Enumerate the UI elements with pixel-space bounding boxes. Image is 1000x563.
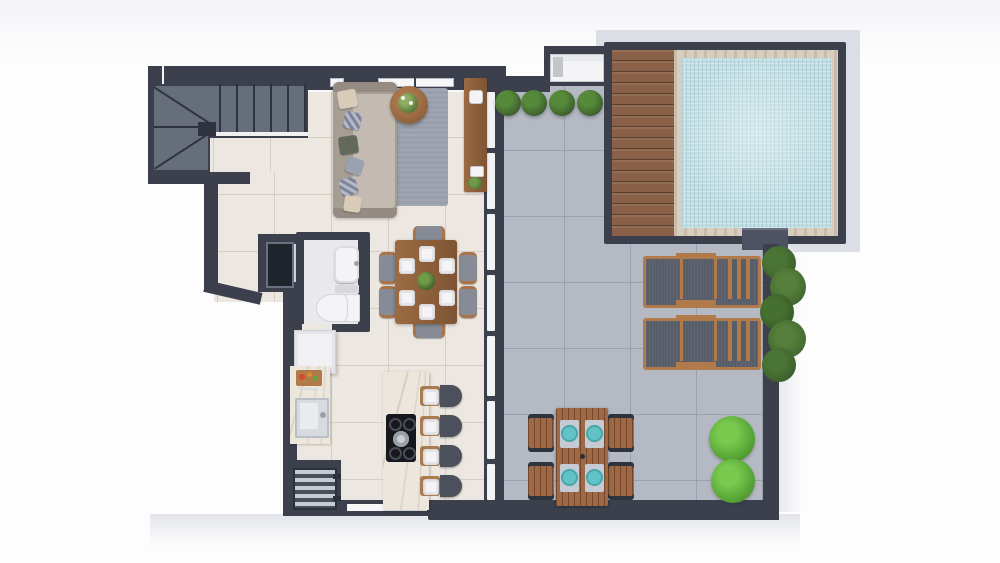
sun-lounger [643, 318, 761, 370]
pot [393, 431, 409, 447]
console-tray [470, 166, 484, 177]
lounger-crossbar [676, 315, 716, 320]
lounger-crossbar [676, 300, 716, 305]
dining-chair [459, 286, 477, 318]
outdoor-chair [608, 462, 634, 500]
bar-plate [423, 479, 439, 495]
teal-plate [561, 469, 578, 486]
glass-pane [487, 464, 495, 500]
console-plant [468, 177, 482, 189]
bathroom [296, 232, 370, 332]
dining-chair [459, 252, 477, 284]
teal-plate [561, 425, 578, 442]
bar-plate [423, 389, 439, 405]
burner [403, 447, 416, 460]
umbrella-hole [580, 454, 585, 459]
outdoor-chair [528, 414, 554, 452]
kitchen-counter [290, 366, 330, 444]
lounger-crossbar [676, 253, 716, 258]
burner [389, 447, 402, 460]
shaft-box [266, 242, 294, 288]
hedge-foliage [762, 348, 796, 382]
toilet-bowl [316, 294, 348, 322]
topiary-bush [577, 90, 603, 116]
bar-stool [440, 415, 462, 437]
sliding-glass-wall [484, 84, 504, 506]
pool-water [682, 58, 832, 228]
bar-stool [440, 385, 462, 407]
bar-stool [440, 475, 462, 497]
grill-enclosure [283, 460, 341, 514]
bar-stool [440, 445, 462, 467]
glass-pane [487, 214, 495, 270]
knife [298, 387, 318, 391]
glass-pane [487, 275, 495, 331]
sofa [333, 82, 397, 218]
stair-newel [198, 122, 216, 136]
food-item-green [313, 376, 318, 381]
wood-deck [612, 50, 674, 236]
topiary-bush [549, 90, 575, 116]
glass-pane [487, 92, 495, 148]
bar-plate [423, 449, 439, 465]
lounger-divider [714, 259, 717, 299]
kitchen-sink-basin [300, 403, 318, 429]
garden-bush [709, 416, 755, 462]
dining-plate [419, 304, 435, 320]
centerpiece-plant [417, 272, 435, 290]
staircase [152, 84, 308, 172]
dining-table [395, 240, 457, 324]
lounger-slats [728, 321, 752, 361]
kitchen-faucet [320, 412, 326, 418]
outdoor-chair [528, 462, 554, 500]
dining-plate [399, 258, 415, 274]
food-item-red [299, 374, 305, 380]
floor-plan-render [0, 0, 1000, 563]
burner [389, 418, 402, 431]
hedge-planter [760, 246, 808, 382]
pool-block [604, 42, 846, 244]
dining-plate [439, 290, 455, 306]
lounger-divider [714, 321, 717, 361]
stair-bottom-wall [148, 170, 250, 184]
left-wall-middle [204, 170, 218, 290]
grill-handle [333, 496, 341, 501]
lounger-divider [680, 321, 683, 361]
sun-lounger [643, 256, 761, 308]
console-vase [469, 90, 483, 104]
glass-pane [487, 336, 495, 396]
washbasin-faucet [354, 261, 359, 266]
ac-unit-compressor [553, 57, 563, 77]
glass-pane [487, 401, 495, 459]
food-item-orange [307, 372, 312, 377]
cooktop [386, 414, 416, 462]
glass-pane [487, 153, 495, 209]
sofa-seat-cushions [353, 92, 395, 208]
stair-cutout-floor [208, 136, 308, 172]
sofa-pillow [337, 88, 359, 109]
garden-bush [711, 459, 755, 503]
sofa-pillow [338, 135, 359, 155]
dining-plate [439, 258, 455, 274]
washbasin-mat [335, 285, 359, 293]
console-table [464, 78, 487, 192]
dining-plate [419, 246, 435, 262]
sofa-pillow [343, 195, 362, 213]
outdoor-chair [608, 414, 634, 452]
bar-plate [423, 419, 439, 435]
lounger-slats [728, 259, 752, 299]
teal-plate [586, 425, 603, 442]
grill-unit [293, 468, 337, 510]
teal-plate [586, 469, 603, 486]
window-mullion [414, 78, 416, 87]
plant-flower [401, 96, 405, 100]
topiary-bush [521, 90, 547, 116]
outdoor-dining-table [556, 408, 608, 506]
plant-flower [409, 101, 413, 105]
grill-handle [333, 474, 341, 479]
lounger-divider [680, 259, 683, 299]
lounger-crossbar [676, 362, 716, 367]
sofa-pillow [342, 110, 362, 130]
dining-plate [399, 290, 415, 306]
burner [403, 418, 416, 431]
topiary-bush [495, 90, 521, 116]
stair-treads [204, 84, 308, 132]
